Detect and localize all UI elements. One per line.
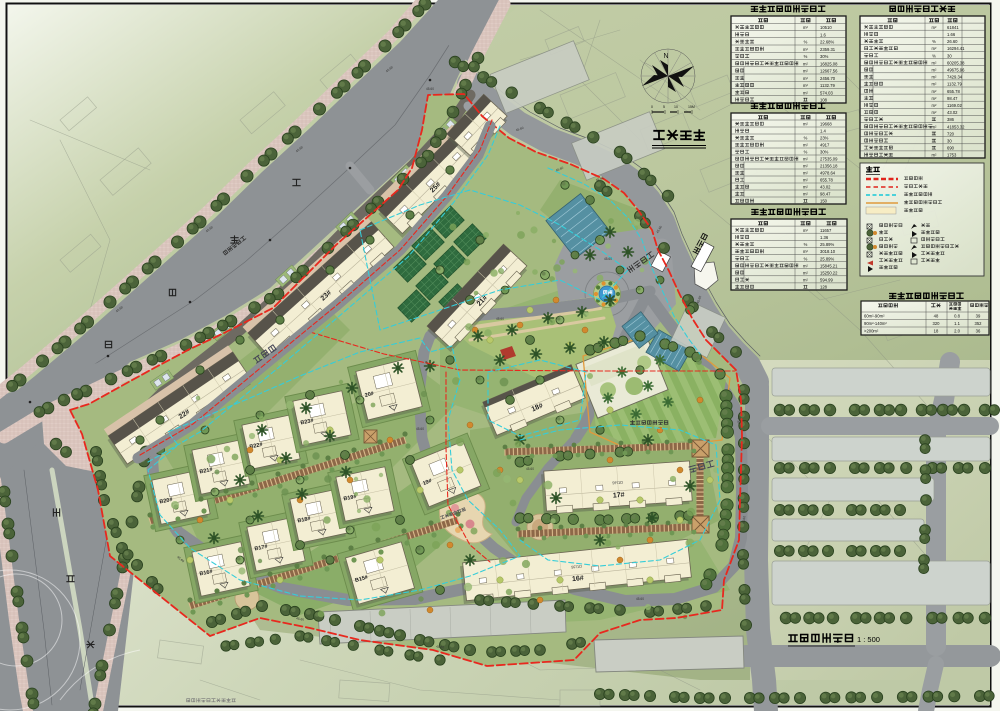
svg-text:%: % — [804, 40, 808, 45]
svg-text:m²: m² — [803, 164, 808, 169]
svg-text:3018.10: 3018.10 — [820, 249, 836, 254]
svg-text:45.60: 45.60 — [604, 257, 612, 261]
svg-text:m²: m² — [803, 178, 808, 183]
svg-text:45.60: 45.60 — [426, 87, 434, 91]
svg-text:%: % — [804, 242, 808, 247]
svg-text:m²: m² — [932, 103, 937, 108]
svg-text:45.60: 45.60 — [416, 427, 424, 431]
svg-text:43.02: 43.02 — [820, 185, 831, 190]
svg-text:150: 150 — [820, 199, 828, 204]
svg-text:2456.70: 2456.70 — [820, 76, 836, 81]
svg-text:1132.79: 1132.79 — [947, 82, 962, 87]
svg-text:m²: m² — [932, 68, 937, 73]
svg-text:m²: m² — [932, 82, 937, 87]
svg-text:386: 386 — [947, 117, 955, 122]
svg-text:30: 30 — [947, 53, 952, 58]
svg-text:m²: m² — [803, 69, 808, 74]
svg-text:48: 48 — [934, 313, 939, 318]
svg-text:1 : 500: 1 : 500 — [857, 635, 880, 644]
svg-text:22.68%: 22.68% — [820, 40, 834, 45]
svg-text:594.99: 594.99 — [820, 278, 833, 283]
svg-text:>200m²: >200m² — [864, 328, 879, 333]
svg-text:1.1: 1.1 — [954, 321, 960, 326]
svg-text:36: 36 — [976, 328, 981, 333]
svg-text:30%: 30% — [820, 54, 829, 59]
svg-text:45.60: 45.60 — [496, 317, 504, 321]
svg-text:19668: 19668 — [820, 122, 832, 127]
svg-text:1.36: 1.36 — [820, 235, 829, 240]
svg-text:60m²-90m²: 60m²-90m² — [864, 313, 885, 318]
svg-text:%: % — [932, 39, 936, 44]
svg-text:108: 108 — [820, 98, 828, 103]
svg-text:10: 10 — [674, 105, 678, 109]
svg-text:m²: m² — [803, 157, 808, 162]
svg-text:4978.64: 4978.64 — [820, 171, 836, 176]
svg-text:%: % — [804, 150, 808, 155]
svg-text:60205.38: 60205.38 — [947, 60, 965, 65]
svg-text:41853.32: 41853.32 — [947, 124, 965, 129]
svg-text:m²: m² — [803, 122, 808, 127]
svg-text:2.0: 2.0 — [954, 328, 960, 333]
svg-text:90m²-140m²: 90m²-140m² — [864, 321, 887, 326]
svg-text:18: 18 — [934, 328, 939, 333]
svg-text:39: 39 — [976, 313, 981, 318]
svg-text:m²: m² — [803, 271, 808, 276]
svg-text:128: 128 — [820, 285, 828, 290]
svg-text:15250.22: 15250.22 — [820, 271, 838, 276]
svg-text:655.78: 655.78 — [947, 89, 960, 94]
svg-text:m²: m² — [803, 76, 808, 81]
svg-text:0: 0 — [651, 105, 653, 109]
svg-text:352: 352 — [975, 321, 983, 326]
svg-text:0.8: 0.8 — [954, 313, 960, 318]
svg-text:m²: m² — [932, 124, 937, 129]
svg-text:1753: 1753 — [947, 153, 957, 158]
svg-text:m²: m² — [803, 278, 808, 283]
svg-text:17#: 17# — [613, 492, 625, 500]
svg-text:N: N — [663, 53, 668, 60]
svg-text:49675.96: 49675.96 — [947, 68, 965, 73]
svg-text:43.02: 43.02 — [947, 110, 958, 115]
svg-text:45.60: 45.60 — [636, 597, 644, 601]
svg-text:2359.31: 2359.31 — [820, 47, 836, 52]
svg-text:1.66: 1.66 — [947, 32, 956, 37]
svg-text:655.78: 655.78 — [820, 178, 833, 183]
svg-text:m²: m² — [803, 263, 808, 268]
svg-text:720: 720 — [947, 131, 955, 136]
svg-text:16294.41: 16294.41 — [947, 46, 965, 51]
svg-text:45.60: 45.60 — [526, 467, 534, 471]
svg-text:m²: m² — [803, 25, 808, 30]
svg-text:574.03: 574.03 — [820, 90, 833, 95]
svg-text:690: 690 — [947, 146, 955, 151]
svg-text:5: 5 — [663, 105, 665, 109]
svg-text:1169.02: 1169.02 — [947, 103, 962, 108]
svg-text:m²: m² — [932, 75, 937, 80]
svg-text:25.89%: 25.89% — [820, 242, 834, 247]
svg-text:%: % — [804, 54, 808, 59]
svg-text:45.60: 45.60 — [737, 416, 742, 425]
svg-text:23%: 23% — [820, 136, 829, 141]
svg-text:m²: m² — [803, 228, 808, 233]
svg-text:30%: 30% — [820, 150, 829, 155]
svg-text:27535.09: 27535.09 — [820, 157, 838, 162]
svg-text:98.47: 98.47 — [947, 96, 958, 101]
svg-text:m²: m² — [803, 249, 808, 254]
svg-text:26.60: 26.60 — [947, 39, 958, 44]
svg-text:m²: m² — [803, 83, 808, 88]
svg-text:m²: m² — [932, 96, 937, 101]
svg-text:m²: m² — [932, 60, 937, 65]
svg-text:11657: 11657 — [820, 228, 832, 233]
svg-text:7429.34: 7429.34 — [947, 75, 963, 80]
svg-text:m²: m² — [932, 25, 937, 30]
svg-text:4917: 4917 — [820, 143, 830, 148]
svg-text:1132.79: 1132.79 — [820, 83, 835, 88]
svg-text:m²: m² — [803, 143, 808, 148]
svg-text:%: % — [804, 256, 808, 261]
svg-text:m²: m² — [803, 171, 808, 176]
svg-text:45.60: 45.60 — [742, 516, 747, 525]
svg-text:30: 30 — [947, 139, 952, 144]
svg-text:61841: 61841 — [947, 25, 959, 30]
svg-text:12667.56: 12667.56 — [820, 69, 838, 74]
svg-text:15845.21: 15845.21 — [820, 263, 838, 268]
svg-text:m²: m² — [932, 153, 937, 158]
svg-text:m²: m² — [803, 185, 808, 190]
svg-text:10510: 10510 — [820, 25, 832, 30]
svg-text:320: 320 — [933, 321, 941, 326]
svg-text:9F/1D: 9F/1D — [612, 480, 623, 486]
svg-text:1.6: 1.6 — [820, 32, 826, 37]
svg-text:15M: 15M — [688, 105, 695, 109]
svg-text:25.89%: 25.89% — [820, 256, 834, 261]
svg-text:%: % — [932, 53, 936, 58]
svg-text:16825.08: 16825.08 — [820, 61, 838, 66]
svg-text:21356.18: 21356.18 — [820, 164, 838, 169]
svg-text:1.4: 1.4 — [820, 129, 826, 134]
svg-text:m²: m² — [803, 192, 808, 197]
svg-text:m²: m² — [803, 90, 808, 95]
svg-text:%: % — [804, 136, 808, 141]
svg-text:16#: 16# — [572, 575, 584, 583]
svg-text:m²: m² — [932, 89, 937, 94]
svg-text:m²: m² — [803, 61, 808, 66]
svg-text:m²: m² — [803, 47, 808, 52]
svg-text:m²: m² — [932, 46, 937, 51]
svg-text:m²: m² — [932, 110, 937, 115]
svg-text:98.47: 98.47 — [820, 192, 831, 197]
